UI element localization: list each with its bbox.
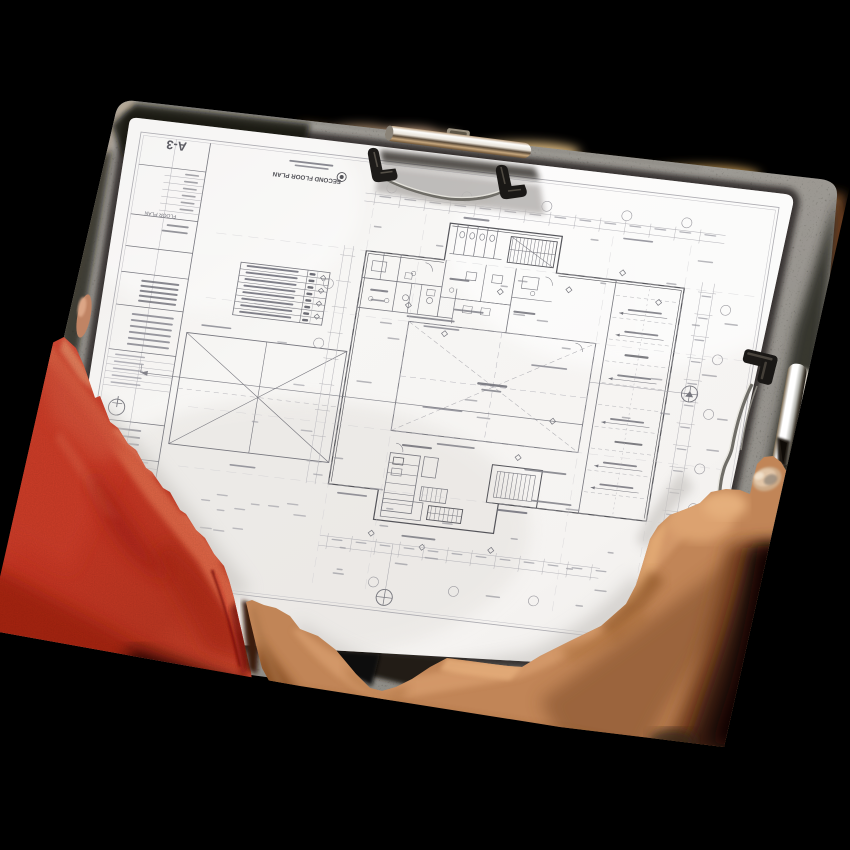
svg-text:A-3: A-3 — [165, 137, 187, 153]
